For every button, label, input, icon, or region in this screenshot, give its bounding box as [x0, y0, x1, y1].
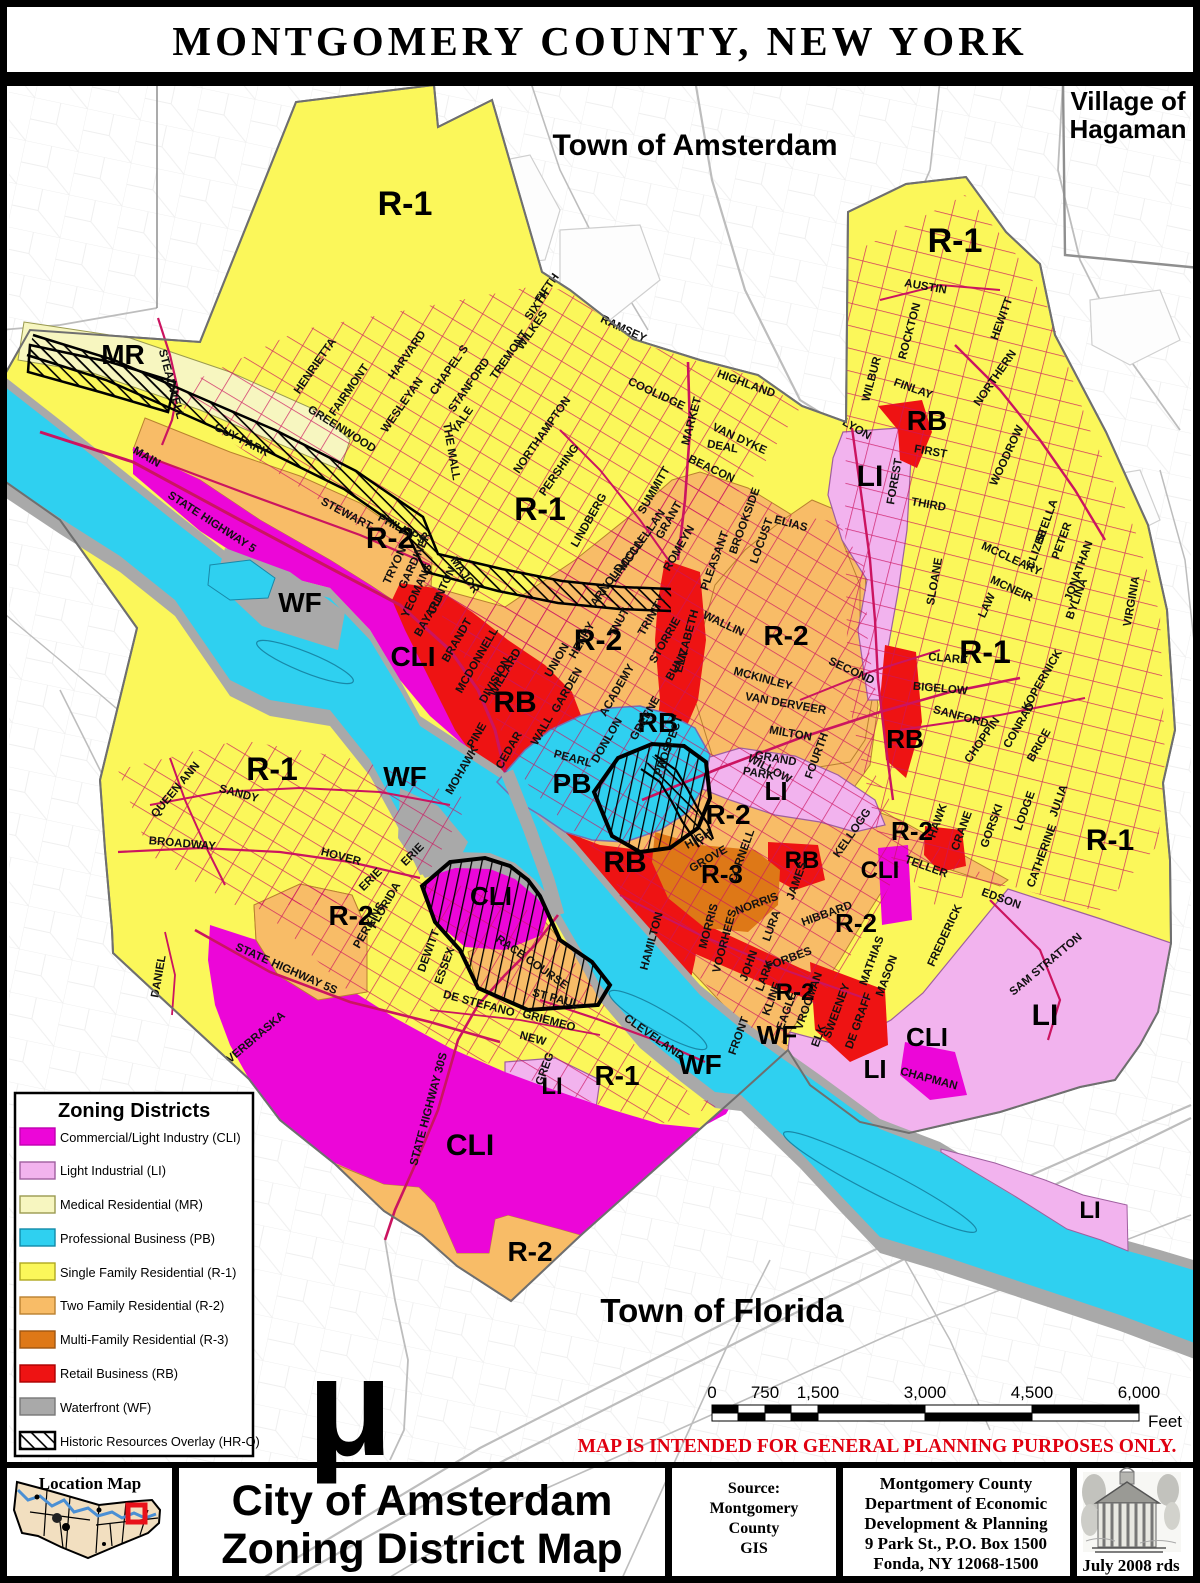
svg-text:750: 750 [751, 1383, 779, 1402]
svg-text:Montgomery County: Montgomery County [880, 1474, 1033, 1493]
svg-text:1,500: 1,500 [797, 1383, 840, 1402]
svg-text:MR: MR [101, 339, 145, 370]
svg-text:R-1: R-1 [594, 1060, 639, 1091]
svg-text:Fonda, NY 12068-1500: Fonda, NY 12068-1500 [873, 1554, 1038, 1573]
svg-text:Montgomery: Montgomery [710, 1500, 799, 1517]
svg-text:LI: LI [1032, 999, 1059, 1032]
svg-text:0: 0 [707, 1383, 716, 1402]
svg-text:Commercial/Light Industry (CLI: Commercial/Light Industry (CLI) [60, 1130, 241, 1145]
svg-text:MONTGOMERY COUNTY, NEW YORK: MONTGOMERY COUNTY, NEW YORK [172, 18, 1027, 64]
svg-text:R-2: R-2 [891, 816, 933, 846]
svg-text:CLI: CLI [390, 641, 435, 672]
svg-text:Town of Amsterdam: Town of Amsterdam [552, 129, 837, 162]
svg-text:CLI: CLI [446, 1129, 494, 1162]
svg-text:July 2008 rds: July 2008 rds [1082, 1556, 1180, 1575]
svg-text:4,500: 4,500 [1011, 1383, 1054, 1402]
svg-text:MAP IS INTENDED FOR GENERAL PL: MAP IS INTENDED FOR GENERAL PLANNING PUR… [578, 1436, 1177, 1457]
svg-text:Two Family Residential (R-2): Two Family Residential (R-2) [60, 1298, 224, 1313]
svg-text:Zoning Districts: Zoning Districts [58, 1100, 210, 1122]
svg-text:County: County [729, 1520, 780, 1537]
svg-text:R-1: R-1 [378, 185, 433, 223]
svg-text:Town of Florida: Town of Florida [600, 1292, 844, 1329]
svg-text:R-2: R-2 [763, 620, 808, 651]
svg-text:R-2: R-2 [705, 799, 750, 830]
svg-text:3,000: 3,000 [904, 1383, 947, 1402]
svg-text:R-1: R-1 [1086, 824, 1134, 857]
svg-text:Department of Economic: Department of Economic [865, 1494, 1048, 1513]
svg-text:R-1: R-1 [246, 751, 298, 787]
svg-text:Single Family Residential (R-1: Single Family Residential (R-1) [60, 1265, 236, 1280]
svg-text:Source:: Source: [728, 1480, 780, 1497]
svg-text:Multi-Family Residential (R-3): Multi-Family Residential (R-3) [60, 1332, 229, 1347]
svg-text:Hagaman: Hagaman [1069, 114, 1186, 144]
svg-text:Village of: Village of [1070, 86, 1185, 116]
svg-text:9 Park St., P.O. Box 1500: 9 Park St., P.O. Box 1500 [865, 1534, 1047, 1553]
svg-text:CLI: CLI [906, 1022, 948, 1052]
svg-text:Location Map: Location Map [39, 1474, 141, 1493]
svg-text:R-1: R-1 [928, 222, 983, 260]
svg-text:RB: RB [603, 846, 646, 879]
svg-text:Development & Planning: Development & Planning [864, 1514, 1048, 1533]
svg-text:Zoning District Map: Zoning District Map [221, 1525, 622, 1573]
svg-text:Feet: Feet [1148, 1412, 1182, 1431]
svg-text:GIS: GIS [740, 1540, 768, 1557]
svg-text:PB: PB [553, 768, 592, 799]
svg-text:R-1: R-1 [514, 491, 566, 527]
svg-text:LI: LI [1079, 1197, 1100, 1224]
svg-text:RB: RB [886, 724, 924, 754]
svg-text:Waterfront (WF): Waterfront (WF) [60, 1400, 151, 1415]
svg-text:CLI: CLI [470, 881, 512, 911]
svg-text:LI: LI [863, 1054, 886, 1084]
svg-text:R-2: R-2 [507, 1236, 552, 1267]
svg-text:Light Industrial (LI): Light Industrial (LI) [60, 1163, 166, 1178]
svg-text:RB: RB [907, 405, 947, 436]
svg-text:Professional Business (PB): Professional Business (PB) [60, 1231, 215, 1246]
svg-text:Retail Business (RB): Retail Business (RB) [60, 1366, 178, 1381]
svg-text:LI: LI [857, 460, 884, 493]
svg-text:Historic Resources Overlay (HR: Historic Resources Overlay (HR-O) [60, 1434, 260, 1449]
svg-text:Medical Residential (MR): Medical Residential (MR) [60, 1197, 203, 1212]
svg-text:6,000: 6,000 [1118, 1383, 1161, 1402]
svg-text:WF: WF [383, 761, 427, 792]
svg-text:City of Amsterdam: City of Amsterdam [232, 1477, 613, 1525]
svg-text:μ: μ [307, 1328, 393, 1485]
svg-text:CLI: CLI [861, 857, 900, 884]
svg-text:WF: WF [278, 587, 322, 618]
